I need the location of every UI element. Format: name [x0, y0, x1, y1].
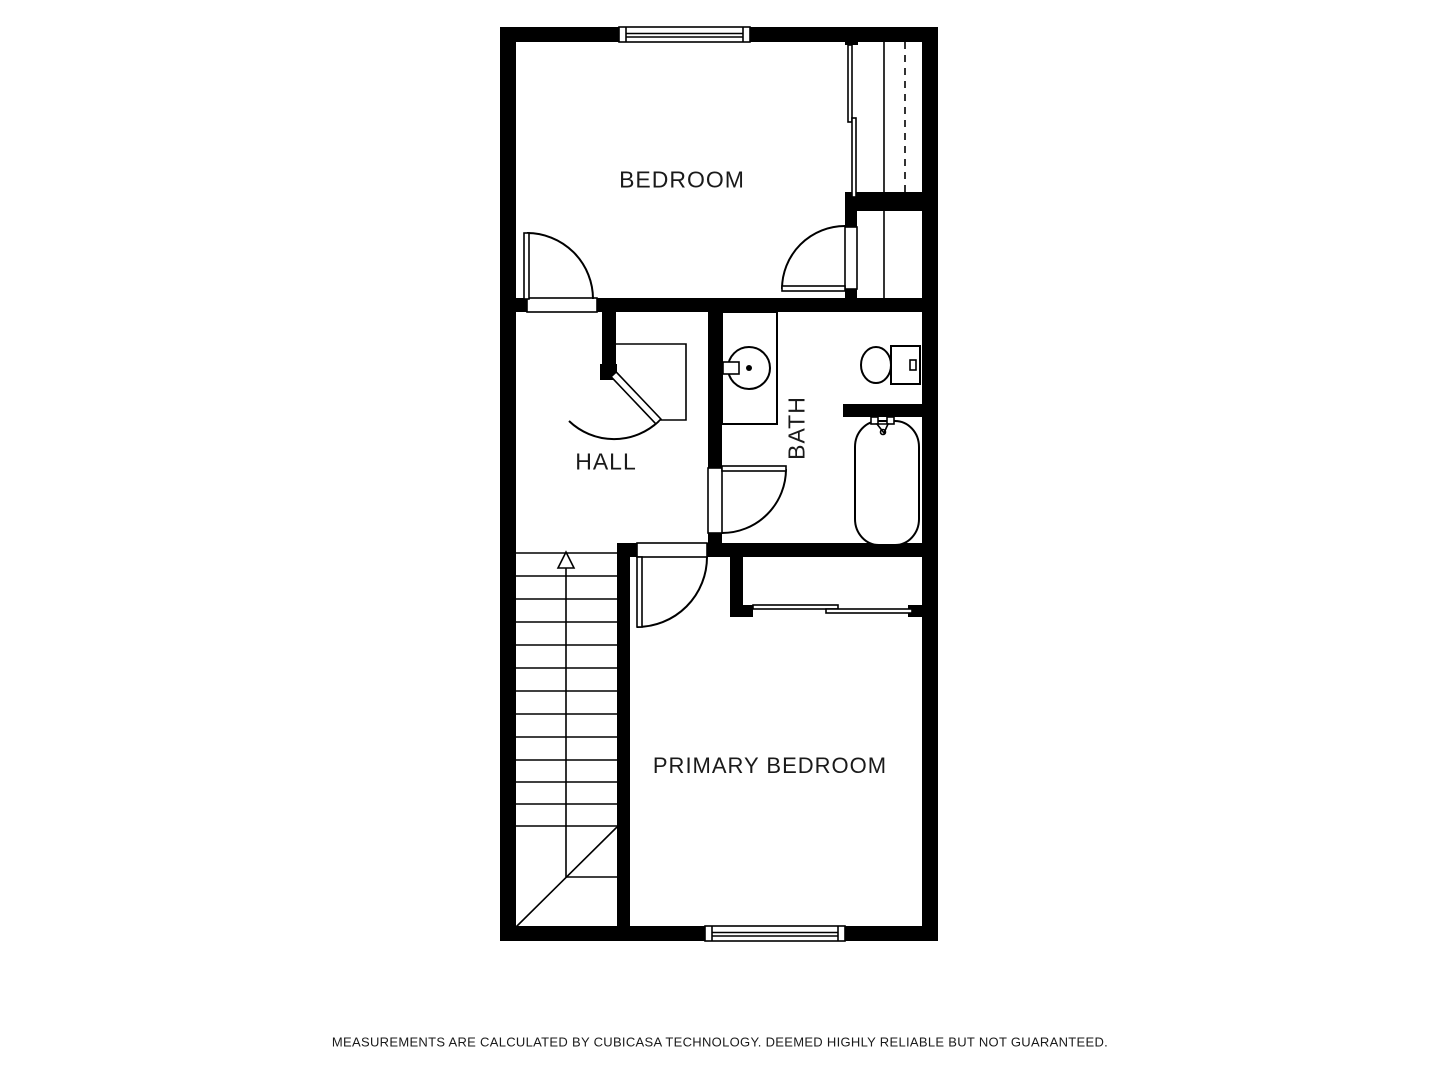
primary-bedroom-door	[637, 557, 707, 627]
bedroom-door	[524, 233, 593, 299]
bedroom-closet-door	[782, 226, 845, 291]
floorplan-page: BEDROOM HALL BATH PRIMARY BEDROOM MEASUR…	[0, 0, 1440, 1080]
floorplan-canvas	[0, 0, 1440, 1080]
sink-vanity	[722, 312, 777, 424]
room-label-hall: HALL	[575, 449, 637, 476]
footer-disclaimer: MEASUREMENTS ARE CALCULATED BY CUBICASA …	[332, 1035, 1108, 1050]
bathtub-icon	[855, 417, 919, 545]
door-thresholds	[527, 227, 857, 557]
wardrobe	[884, 42, 905, 197]
primary-closet-sliding-door	[753, 605, 912, 613]
hall-closet-door	[569, 372, 661, 439]
window-top	[619, 27, 750, 42]
bedroom-closet-sliding-door	[848, 45, 856, 197]
room-label-bedroom: BEDROOM	[619, 167, 745, 194]
window-bottom	[705, 926, 845, 941]
room-label-primary-bedroom: PRIMARY BEDROOM	[653, 753, 887, 779]
toilet-icon	[861, 346, 920, 384]
bath-door	[722, 466, 786, 533]
room-label-bath: BATH	[784, 396, 811, 460]
